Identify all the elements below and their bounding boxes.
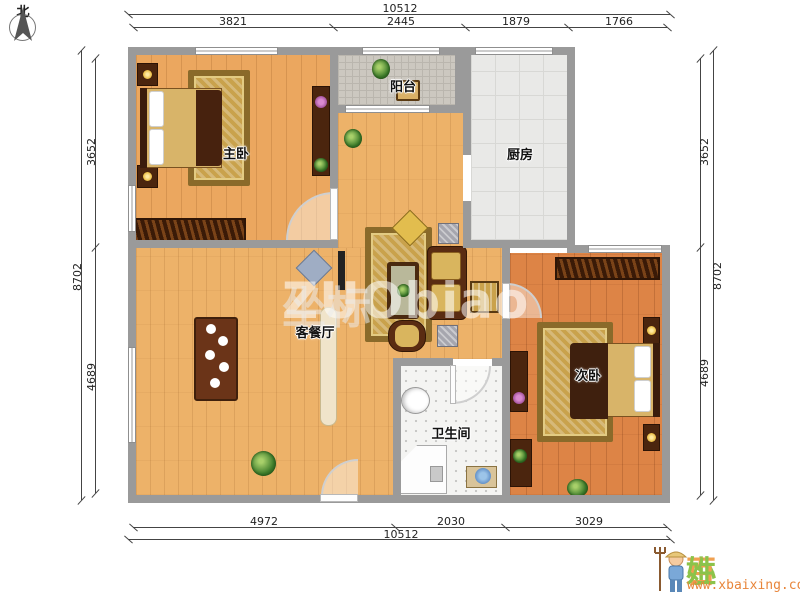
window xyxy=(128,185,136,232)
bathroom-door-opening xyxy=(453,359,492,366)
wall xyxy=(463,200,471,245)
wall xyxy=(128,240,338,248)
dim-line-left-segments xyxy=(95,58,96,493)
dim-top-seg: 2445 xyxy=(376,15,426,28)
window xyxy=(475,47,553,55)
plate xyxy=(205,350,215,360)
lamp-icon xyxy=(647,433,656,442)
dim-right-seg: 3652 xyxy=(698,127,710,177)
flower-icon xyxy=(315,96,327,108)
wall xyxy=(455,47,463,113)
living-plant-icon xyxy=(251,451,276,476)
second-bed-pillow xyxy=(634,380,651,412)
dim-bottom-seg: 2030 xyxy=(426,515,476,528)
label-second-bedroom: 次卧 xyxy=(558,365,618,384)
wall xyxy=(463,47,471,155)
shower-head xyxy=(430,466,443,482)
dim-top-total: 10512 xyxy=(375,2,425,15)
dim-bottom-seg: 4972 xyxy=(239,515,289,528)
wall xyxy=(463,240,575,248)
living-plant-icon xyxy=(344,129,362,148)
dim-top-seg: 3821 xyxy=(208,15,258,28)
farmer-mascot-icon xyxy=(652,545,690,595)
master-bed-pillow xyxy=(149,129,164,165)
label-master-bedroom: 主卧 xyxy=(206,143,266,162)
second-bed-pillow xyxy=(634,346,651,378)
wall xyxy=(502,318,510,503)
plant-icon xyxy=(314,158,328,172)
wall xyxy=(330,55,338,188)
label-balcony: 阳台 xyxy=(373,76,433,95)
wall xyxy=(567,47,575,253)
second-bed-headboard xyxy=(653,343,660,417)
plant-icon xyxy=(513,449,527,463)
master-bed-pillow xyxy=(149,91,164,127)
lamp-icon xyxy=(143,70,152,79)
label-bathroom: 卫生间 xyxy=(421,423,481,442)
wall xyxy=(393,366,401,495)
dim-left-seg: 3652 xyxy=(85,127,97,177)
bathroom-door xyxy=(450,365,456,404)
label-kitchen: 厨房 xyxy=(490,144,550,163)
floor-cushion xyxy=(438,223,459,244)
dim-line-right-segments xyxy=(700,58,701,495)
dim-top-seg: 1766 xyxy=(594,15,644,28)
flower-icon xyxy=(513,392,525,404)
dim-top-seg: 1879 xyxy=(491,15,541,28)
dim-bottom-seg: 3029 xyxy=(564,515,614,528)
window xyxy=(588,245,662,253)
dim-right-total: 8702 xyxy=(711,251,723,301)
plate xyxy=(218,336,228,346)
label-living-dining: 客餐厅 xyxy=(285,322,345,341)
master-wardrobe xyxy=(133,218,246,242)
window xyxy=(128,347,136,443)
toilet-bowl xyxy=(401,387,430,414)
second-cabinet xyxy=(510,439,532,487)
floorplan-canvas: 北 xyxy=(0,0,800,600)
lamp-icon xyxy=(143,172,152,181)
master-bed-headboard xyxy=(140,88,147,168)
window xyxy=(362,47,440,55)
dim-left-seg: 4689 xyxy=(85,352,97,402)
window xyxy=(195,47,278,55)
wash-basin xyxy=(475,468,491,484)
dim-bottom-total: 10512 xyxy=(376,528,426,541)
logo-url: www.xbaixing.com xyxy=(687,578,800,593)
dim-right-seg: 4689 xyxy=(698,348,710,398)
master-door xyxy=(330,188,338,240)
dim-left-total: 8702 xyxy=(71,252,83,302)
wall xyxy=(128,495,670,503)
plate xyxy=(219,362,229,372)
wall xyxy=(393,358,453,366)
plate xyxy=(206,324,216,334)
dining-table xyxy=(194,317,238,401)
compass-needle-icon xyxy=(9,5,37,43)
plate xyxy=(210,378,220,388)
kitchen-door-opening xyxy=(463,155,471,201)
entrance-door xyxy=(320,494,358,502)
window xyxy=(345,105,430,113)
